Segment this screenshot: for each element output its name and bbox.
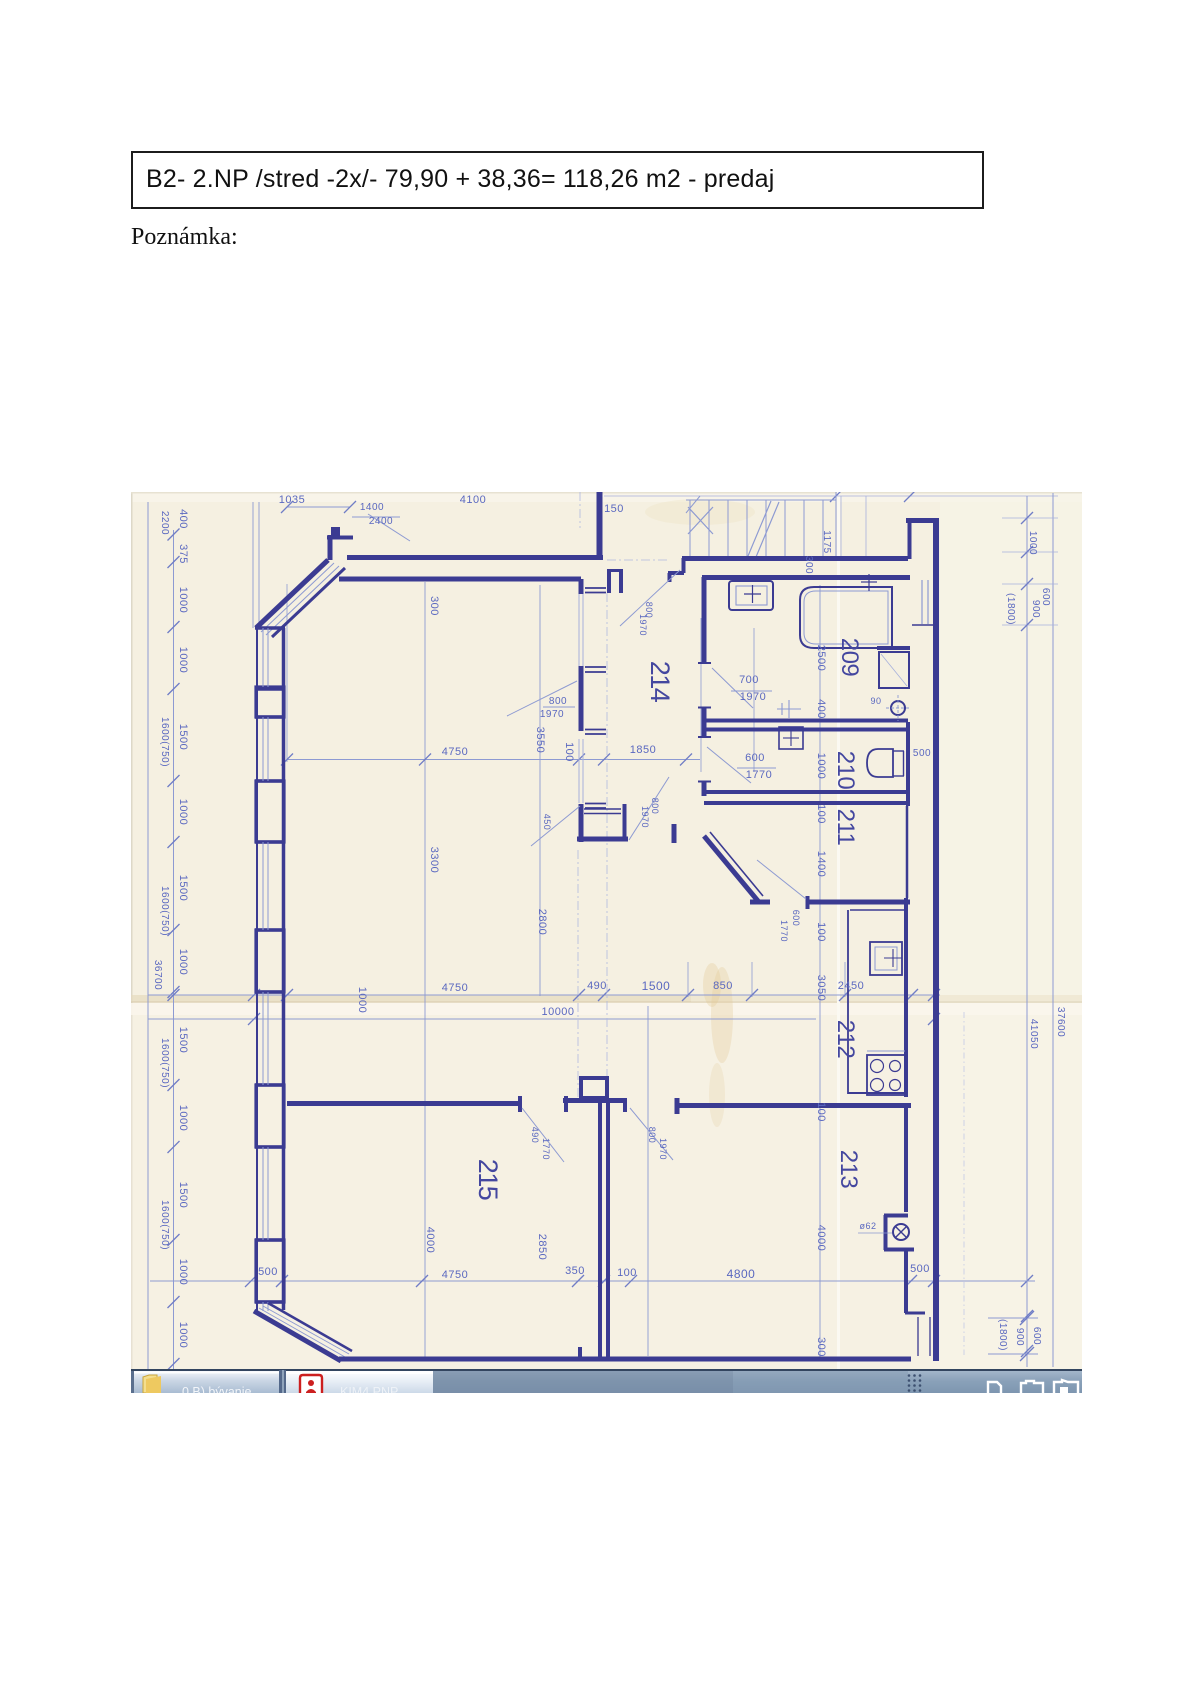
svg-text:3300: 3300 (428, 847, 440, 873)
svg-text:(1800): (1800) (997, 1319, 1008, 1351)
svg-text:1000: 1000 (177, 1322, 189, 1348)
svg-text:900: 900 (1014, 1328, 1025, 1346)
svg-text:490: 490 (587, 980, 607, 992)
svg-text:1400: 1400 (815, 851, 827, 877)
svg-text:3550: 3550 (534, 727, 546, 753)
svg-text:800: 800 (650, 798, 660, 815)
svg-text:700: 700 (739, 674, 759, 686)
svg-text:1970: 1970 (638, 614, 648, 636)
svg-text:1600(750): 1600(750) (159, 717, 170, 767)
svg-text:300: 300 (428, 596, 440, 616)
svg-text:300: 300 (803, 556, 814, 574)
svg-text:1000: 1000 (177, 949, 189, 975)
svg-text:1500: 1500 (177, 1182, 189, 1208)
svg-text:600: 600 (791, 910, 801, 927)
svg-text:900: 900 (1030, 600, 1041, 618)
svg-text:1600(750): 1600(750) (159, 1200, 170, 1250)
svg-text:1000: 1000 (815, 753, 827, 779)
svg-text:4750: 4750 (442, 1269, 468, 1281)
svg-text:2850: 2850 (536, 1234, 548, 1260)
svg-text:100: 100 (815, 1102, 827, 1122)
svg-text:1970: 1970 (658, 1138, 668, 1160)
svg-text:500: 500 (910, 1263, 930, 1275)
svg-text:36700: 36700 (152, 960, 163, 990)
svg-text:1770: 1770 (541, 1138, 551, 1160)
svg-text:211: 211 (832, 809, 859, 846)
svg-text:400: 400 (177, 509, 189, 529)
svg-text:800: 800 (647, 1127, 657, 1144)
svg-text:210: 210 (832, 751, 859, 790)
svg-text:1970: 1970 (540, 709, 564, 720)
svg-text:150: 150 (604, 503, 624, 515)
svg-text:500: 500 (258, 1266, 278, 1278)
svg-text:800: 800 (549, 696, 567, 707)
svg-text:2400: 2400 (369, 516, 393, 527)
svg-text:90: 90 (870, 696, 881, 706)
svg-text:212: 212 (832, 1020, 859, 1059)
svg-text:1970: 1970 (640, 806, 650, 828)
svg-text:2500: 2500 (815, 645, 827, 671)
svg-text:4750: 4750 (442, 746, 468, 758)
svg-text:4750: 4750 (442, 982, 468, 994)
svg-text:100: 100 (815, 922, 827, 942)
svg-text:215: 215 (473, 1159, 503, 1200)
svg-text:1000: 1000 (177, 1259, 189, 1285)
svg-text:100: 100 (563, 742, 575, 762)
svg-text:300: 300 (815, 1337, 827, 1357)
svg-text:0 B) bývanie: 0 B) bývanie (182, 1385, 252, 1393)
svg-text:(1800): (1800) (1005, 593, 1016, 625)
svg-text:213: 213 (835, 1150, 862, 1189)
svg-text:500: 500 (913, 748, 931, 759)
svg-text:1000: 1000 (356, 987, 368, 1013)
svg-text:3050: 3050 (815, 975, 827, 1001)
svg-text:850: 850 (713, 980, 733, 992)
svg-text:1600(750): 1600(750) (159, 886, 170, 936)
svg-text:1000: 1000 (177, 799, 189, 825)
svg-text:1600(750): 1600(750) (159, 1038, 170, 1088)
svg-text:KIM4.PNP: KIM4.PNP (340, 1385, 398, 1393)
svg-text:1000: 1000 (177, 1105, 189, 1131)
svg-text:4100: 4100 (460, 494, 486, 506)
svg-text:1970: 1970 (740, 691, 766, 703)
svg-text:350: 350 (565, 1265, 585, 1277)
svg-text:490: 490 (530, 1127, 540, 1144)
svg-text:214: 214 (645, 661, 675, 703)
svg-text:100: 100 (617, 1267, 637, 1279)
svg-text:2200: 2200 (159, 511, 170, 535)
svg-text:1000: 1000 (177, 587, 189, 613)
svg-text:4000: 4000 (424, 1227, 436, 1253)
svg-text:41050: 41050 (1028, 1019, 1039, 1049)
svg-text:1000: 1000 (1027, 531, 1038, 555)
svg-text:400: 400 (815, 699, 827, 719)
svg-text:375: 375 (177, 544, 189, 564)
svg-text:37600: 37600 (1055, 1007, 1066, 1037)
svg-text:100: 100 (815, 804, 827, 824)
svg-text:1500: 1500 (177, 1027, 189, 1053)
svg-text:1175: 1175 (821, 530, 832, 554)
svg-text:1770: 1770 (779, 920, 789, 942)
svg-text:1400: 1400 (360, 502, 384, 513)
svg-text:1000: 1000 (177, 647, 189, 673)
svg-text:ø62: ø62 (859, 1221, 876, 1231)
svg-text:600: 600 (1031, 1327, 1042, 1345)
svg-text:1500: 1500 (177, 724, 189, 750)
svg-text:2800: 2800 (536, 909, 548, 935)
svg-text:1500: 1500 (642, 979, 671, 993)
svg-text:1035: 1035 (279, 494, 305, 506)
svg-text:450: 450 (542, 814, 552, 831)
svg-text:209: 209 (836, 638, 863, 677)
svg-text:1770: 1770 (746, 769, 772, 781)
svg-text:4800: 4800 (727, 1267, 756, 1281)
svg-text:600: 600 (745, 752, 765, 764)
svg-text:1850: 1850 (630, 744, 656, 756)
svg-text:2450: 2450 (838, 980, 864, 992)
svg-text:4000: 4000 (815, 1225, 827, 1251)
svg-text:1500: 1500 (177, 875, 189, 901)
svg-text:10000: 10000 (541, 1006, 574, 1018)
